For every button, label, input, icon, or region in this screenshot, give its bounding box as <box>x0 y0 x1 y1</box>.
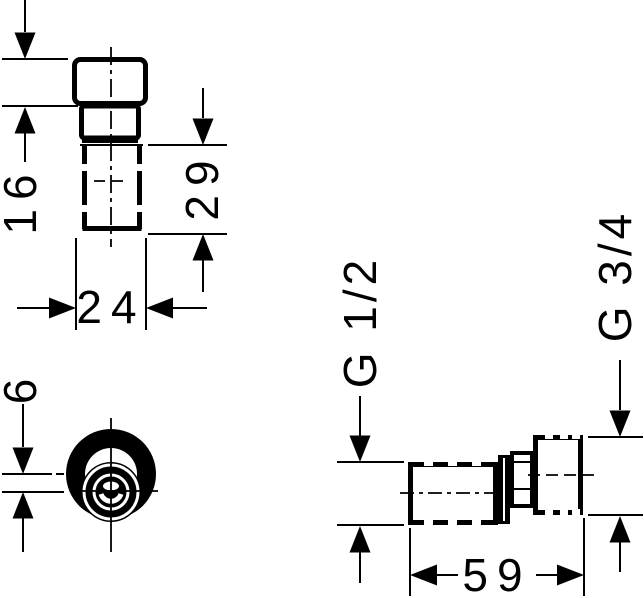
dim-24: 24 <box>17 238 207 333</box>
bottom-view: 6 <box>0 370 158 552</box>
bottom-view-body <box>66 418 158 552</box>
arrow-right-icon <box>49 298 76 319</box>
arrow-up-icon <box>15 107 36 134</box>
thread-tick <box>448 459 457 466</box>
front-view-body <box>75 47 146 247</box>
arrow-down-icon <box>15 33 36 60</box>
thread-tick <box>448 519 457 526</box>
arrow-up-icon <box>193 234 214 261</box>
knurl-tick <box>572 509 580 516</box>
knurl-tick <box>572 432 580 439</box>
dim-16: 16 <box>0 0 78 235</box>
arrow-down-icon <box>350 436 371 463</box>
thread-tick <box>135 205 144 212</box>
front-cap <box>75 60 146 104</box>
arrow-down-icon <box>193 119 214 146</box>
thread-g12-label: G 1/2 <box>334 256 386 389</box>
thread-tick <box>472 459 481 466</box>
dim-59-label: 59 <box>462 549 531 598</box>
side-view-body <box>400 432 594 526</box>
side-thread-cylinder <box>411 465 496 523</box>
arrow-up-icon <box>350 526 371 553</box>
dim-6-label: 6 <box>0 370 46 405</box>
arrow-right-icon <box>557 565 584 586</box>
knurl-tick <box>545 432 553 439</box>
dim-g12: G 1/2 <box>334 256 404 583</box>
thread-tick <box>424 459 433 466</box>
front-view: 16 29 24 <box>0 0 228 333</box>
thread-tick <box>135 164 144 171</box>
front-neck <box>82 106 139 138</box>
dim-29: 29 <box>148 88 228 292</box>
knurl-tick <box>560 432 568 439</box>
thread-tick <box>80 164 89 171</box>
side-hex-nut <box>512 453 532 506</box>
thread-tick <box>80 205 89 212</box>
arrow-up-icon <box>13 492 34 519</box>
arrow-left-icon <box>410 565 437 586</box>
arrow-up-icon <box>610 516 631 543</box>
dim-59: 59 <box>410 518 584 598</box>
arrow-down-icon <box>610 411 631 438</box>
dim-g34: G 3/4 <box>588 210 643 572</box>
dim-29-label: 29 <box>176 151 228 220</box>
knurl-tick <box>545 509 553 516</box>
dim-24-label: 24 <box>76 281 145 333</box>
dim-16-label: 16 <box>0 165 46 234</box>
thread-g34-label: G 3/4 <box>589 210 641 343</box>
dim-6: 6 <box>0 370 64 552</box>
thread-tick <box>472 519 481 526</box>
fitting-technical-drawing: 16 29 24 <box>0 0 644 598</box>
arrow-left-icon <box>146 298 173 319</box>
arrow-down-icon <box>13 448 34 475</box>
technical-drawing-canvas: 16 29 24 <box>0 0 644 598</box>
knurl-tick <box>560 509 568 516</box>
thread-tick <box>424 519 433 526</box>
side-view: G 1/2 G 3/4 59 <box>334 210 643 598</box>
